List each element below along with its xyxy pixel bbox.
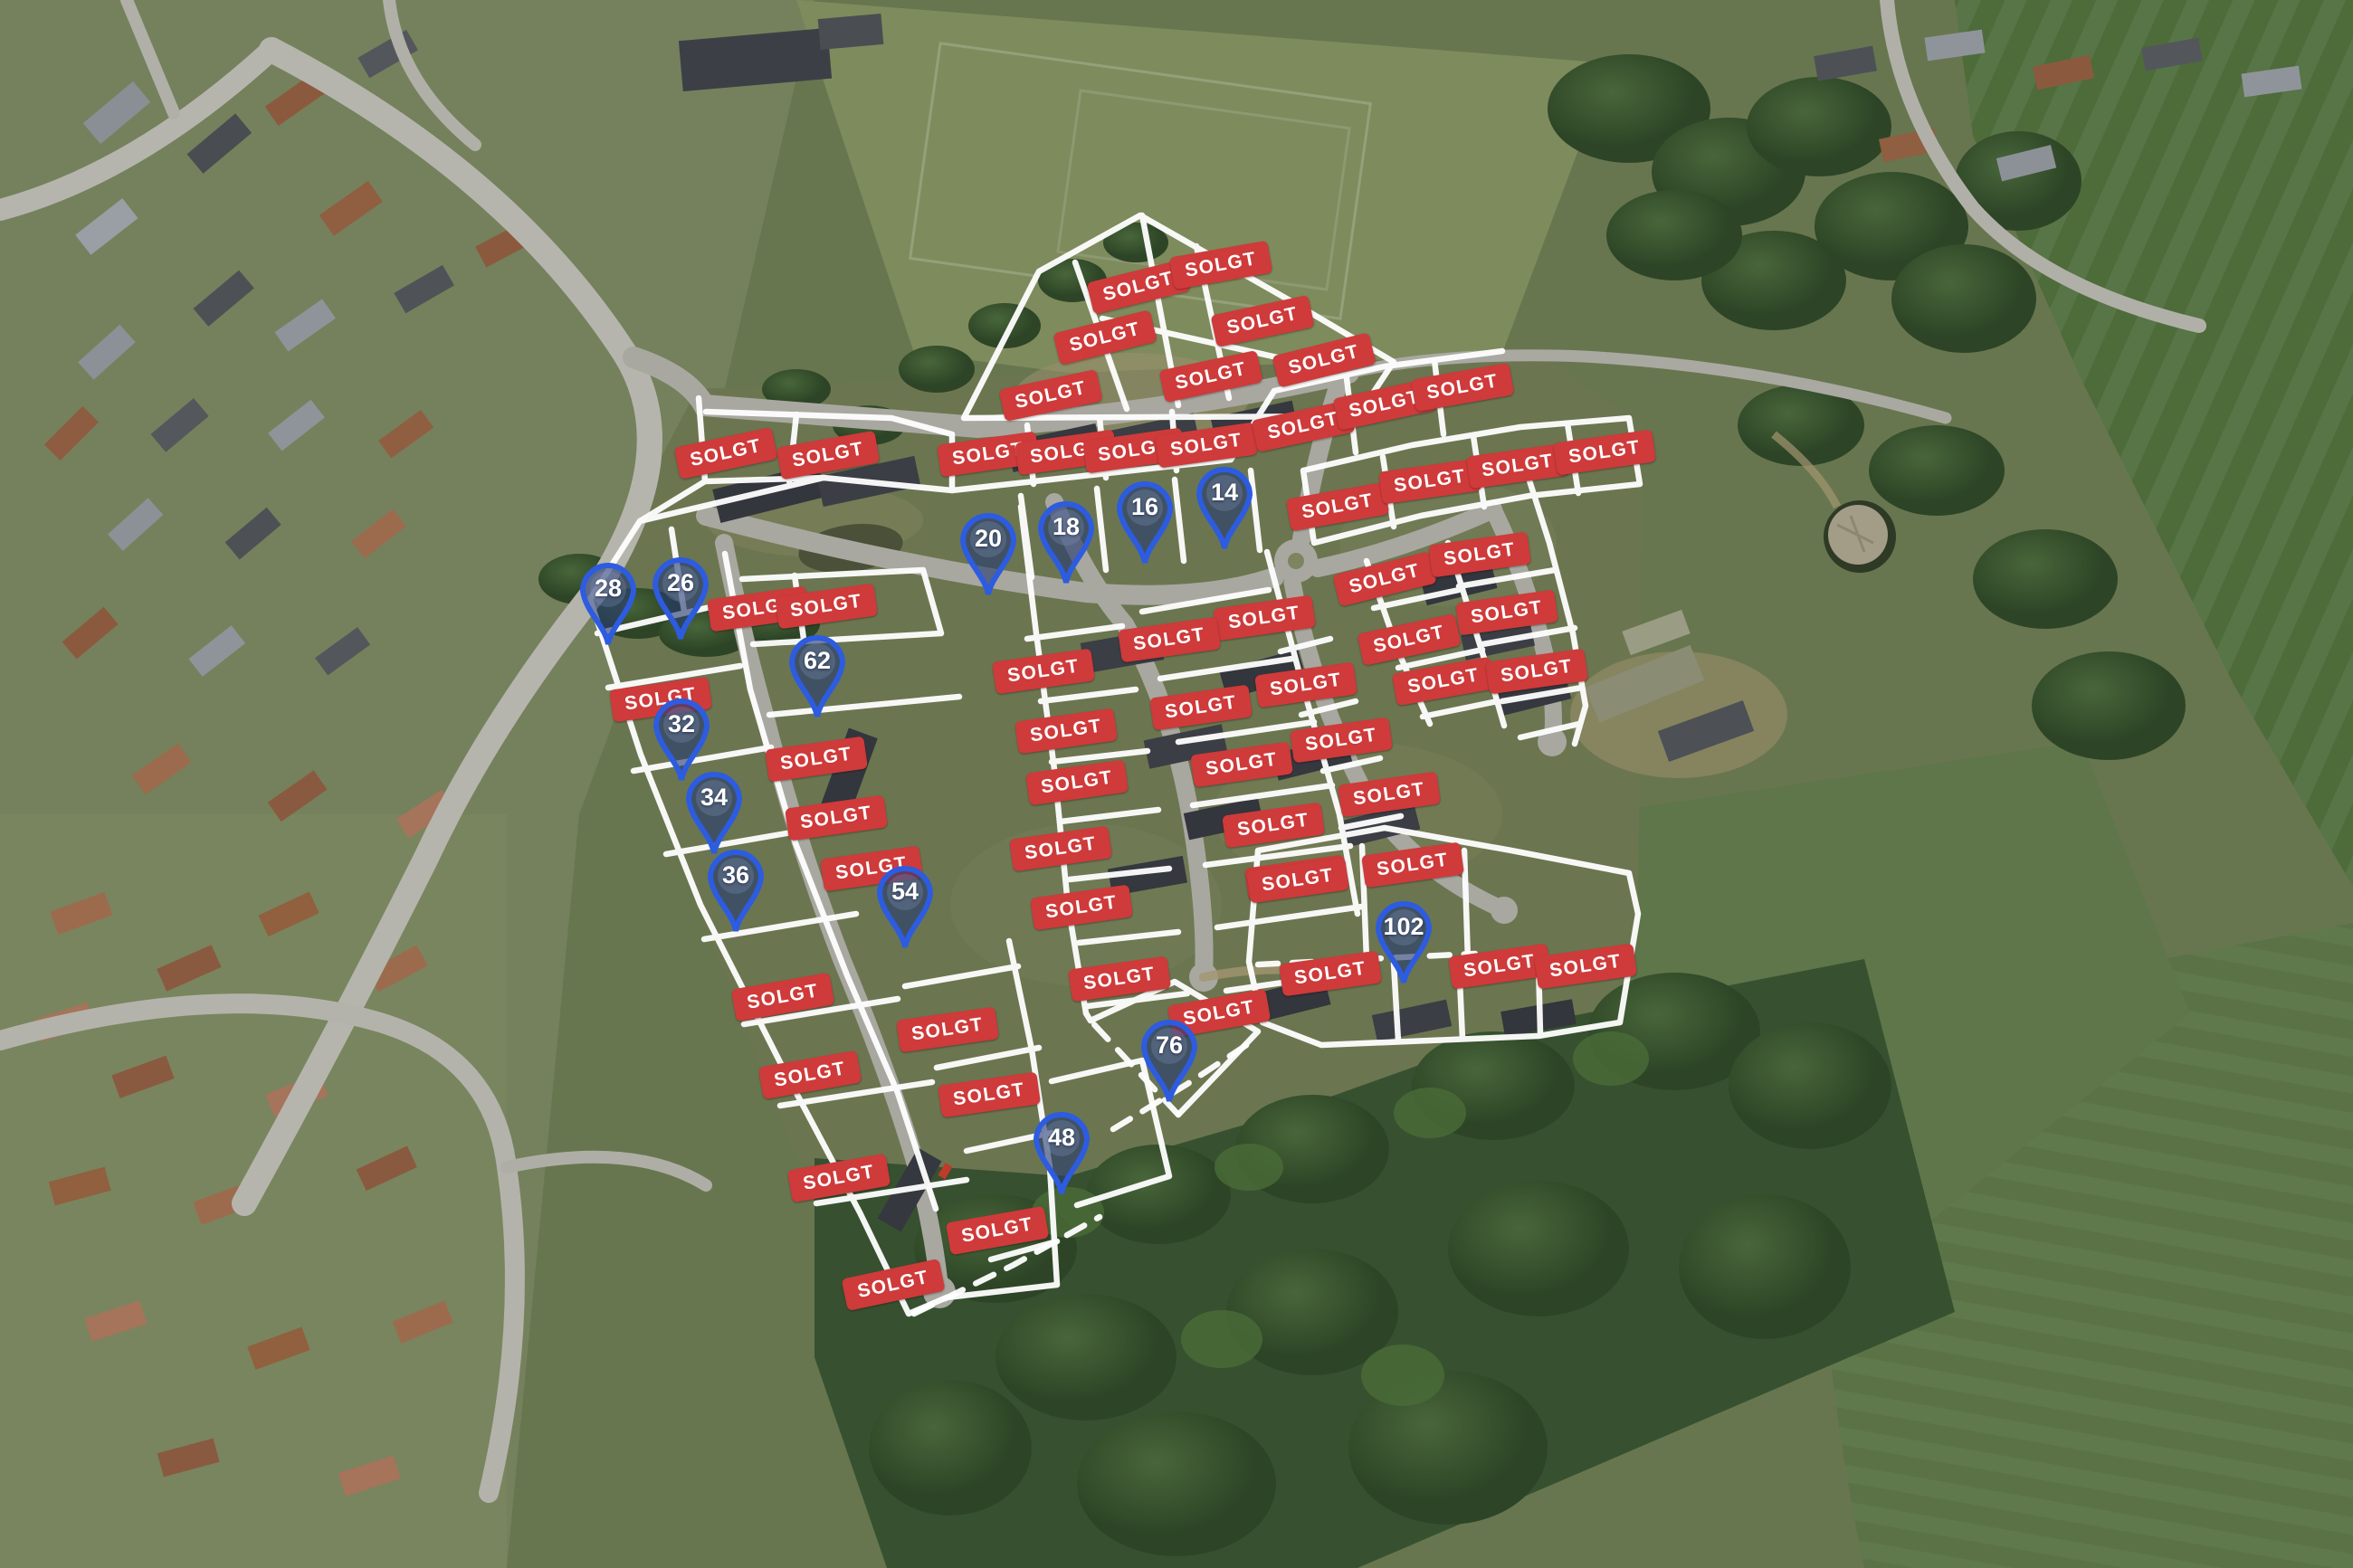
sold-plot-label-text: SOLGT (1300, 489, 1376, 523)
plot-number: 26 (648, 569, 713, 597)
sold-plot-label: SOLGT (674, 427, 778, 480)
sold-plot-label: SOLGT (1211, 295, 1315, 347)
available-plot-pin[interactable]: 48 (1029, 1104, 1094, 1198)
sold-plot-label: SOLGT (1332, 551, 1436, 607)
sold-plot-label: SOLGT (1534, 944, 1637, 990)
sold-plot-label-text: SOLGT (1006, 656, 1081, 687)
sold-plot-label: SOLGT (1025, 760, 1129, 806)
sold-plot-label: SOLGT (1254, 662, 1357, 708)
sold-plot-label-text: SOLGT (688, 435, 763, 470)
sold-plot-label-text: SOLGT (1044, 892, 1119, 923)
sold-plot-label-text: SOLGT (1443, 539, 1517, 570)
sold-plot-label-text: SOLGT (1470, 597, 1544, 628)
sold-plot-label-text: SOLGT (1567, 437, 1642, 468)
sold-plot-label: SOLGT (1222, 803, 1325, 849)
plot-number: 28 (576, 575, 641, 603)
sold-plot-label-text: SOLGT (1352, 779, 1426, 810)
sold-plot-label: SOLGT (1411, 363, 1514, 413)
sold-plot-label: SOLGT (765, 736, 868, 783)
sold-plot-label: SOLGT (785, 795, 888, 841)
sold-plot-label: SOLGT (1118, 617, 1221, 663)
sold-plot-label: SOLGT (1392, 657, 1495, 707)
available-plot-pin[interactable]: 102 (1371, 893, 1436, 987)
plot-number: 20 (956, 525, 1021, 553)
sold-plot-label-text: SOLGT (789, 591, 863, 622)
sold-plot-label: SOLGT (938, 1072, 1041, 1118)
sold-plot-label-text: SOLGT (1227, 603, 1301, 633)
sold-plot-label: SOLGT (1159, 350, 1263, 403)
plot-number: 48 (1029, 1124, 1094, 1152)
sold-plot-label: SOLGT (731, 973, 834, 1022)
sold-plot-label: SOLGT (1286, 482, 1389, 532)
sold-plot-label: SOLGT (1068, 956, 1171, 1003)
sold-plot-label: SOLGT (1190, 742, 1293, 788)
sold-plot-label: SOLGT (992, 649, 1095, 695)
sold-plot-label-text: SOLGT (799, 803, 873, 833)
sold-plot-label-text: SOLGT (1013, 377, 1088, 413)
sold-plot-label-text: SOLGT (1347, 560, 1422, 598)
plot-number: 34 (681, 784, 747, 812)
sold-plot-label-text: SOLGT (1425, 370, 1500, 404)
sold-plot-label-text: SOLGT (1040, 767, 1114, 798)
sold-plot-label-text: SOLGT (1100, 268, 1176, 306)
plot-number: 18 (1034, 513, 1099, 541)
sold-plot-label: SOLGT (1361, 842, 1464, 889)
sold-plot-label: SOLGT (787, 1154, 891, 1203)
sold-plot-label-text: SOLGT (746, 980, 821, 1013)
available-plot-pin[interactable]: 62 (785, 627, 850, 721)
sold-plot-label-text: SOLGT (1548, 951, 1623, 982)
sold-plot-label-text: SOLGT (1184, 248, 1259, 281)
sold-plot-label-text: SOLGT (1293, 958, 1367, 989)
sold-plot-label-text: SOLGT (1406, 664, 1481, 698)
plot-number: 36 (703, 861, 768, 889)
sold-plot-label-text: SOLGT (1067, 318, 1142, 356)
sold-plot-label: SOLGT (1246, 858, 1349, 904)
plot-marker-overlay: SOLGT SOLGT SOLGT SOLGT SOLGT SOLGT SOLG… (0, 0, 2353, 1568)
sold-plot-label-text: SOLGT (1224, 303, 1300, 338)
plot-number: 32 (649, 710, 714, 738)
sold-plot-label-text: SOLGT (952, 1079, 1026, 1110)
sold-plot-label-text: SOLGT (1269, 670, 1343, 700)
sold-plot-label-text: SOLGT (1347, 386, 1422, 422)
sold-plot-label: SOLGT (1455, 590, 1558, 636)
available-plot-pin[interactable]: 26 (648, 549, 713, 643)
sold-plot-label-text: SOLGT (791, 438, 866, 471)
plot-number: 54 (872, 878, 938, 906)
sold-plot-label: SOLGT (946, 1206, 1049, 1256)
sold-plot-label: SOLGT (1053, 309, 1157, 366)
sold-plot-label-text: SOLGT (773, 1058, 848, 1091)
available-plot-pin[interactable]: 76 (1137, 1012, 1202, 1106)
plot-number: 76 (1137, 1031, 1202, 1060)
sold-plot-label-text: SOLGT (1393, 466, 1467, 497)
sold-plot-label: SOLGT (842, 1259, 946, 1311)
sold-plot-label-text: SOLGT (1173, 358, 1248, 394)
sold-plot-label-text: SOLGT (1462, 951, 1537, 982)
sold-plot-label-text: SOLGT (1164, 692, 1238, 723)
sold-plot-label: SOLGT (1213, 595, 1316, 641)
sold-plot-label: SOLGT (1428, 532, 1531, 578)
sold-plot-label-text: SOLGT (1024, 833, 1098, 864)
sold-plot-label: SOLGT (1485, 649, 1588, 695)
sold-plot-label-text: SOLGT (1481, 451, 1555, 481)
sold-plot-label: SOLGT (999, 369, 1103, 422)
satellite-map: SOLGT SOLGT SOLGT SOLGT SOLGT SOLGT SOLG… (0, 0, 2353, 1568)
sold-plot-label: SOLGT (1149, 685, 1253, 731)
sold-plot-label-text: SOLGT (1286, 341, 1361, 379)
sold-plot-label-text: SOLGT (1500, 656, 1574, 687)
plot-number: 102 (1371, 913, 1436, 941)
available-plot-pin[interactable]: 16 (1112, 473, 1177, 567)
sold-plot-label: SOLGT (1553, 430, 1656, 476)
sold-plot-label: SOLGT (1338, 772, 1441, 818)
sold-plot-label: SOLGT (1030, 885, 1133, 931)
sold-plot-label: SOLGT (1279, 951, 1382, 997)
available-plot-pin[interactable]: 54 (872, 858, 938, 952)
sold-plot-label: SOLGT (1272, 332, 1376, 388)
available-plot-pin[interactable]: 20 (956, 505, 1021, 599)
sold-plot-label: SOLGT (1357, 613, 1462, 666)
sold-plot-label-text: SOLGT (1371, 622, 1446, 657)
plot-number: 14 (1192, 479, 1257, 507)
plot-number: 62 (785, 647, 850, 675)
sold-plot-label-text: SOLGT (1236, 810, 1310, 841)
sold-plot-label-text: SOLGT (802, 1161, 877, 1194)
sold-plot-label-text: SOLGT (779, 744, 853, 774)
sold-plot-label-text: SOLGT (960, 1213, 1035, 1247)
sold-plot-label: SOLGT (1009, 826, 1112, 872)
sold-plot-label-text: SOLGT (1169, 430, 1243, 461)
sold-plot-label-text: SOLGT (1376, 850, 1450, 880)
plot-number: 16 (1112, 493, 1177, 521)
sold-plot-label-text: SOLGT (951, 439, 1025, 470)
sold-plot-label: SOLGT (758, 1050, 862, 1100)
sold-plot-label-text: SOLGT (1304, 725, 1378, 755)
sold-plot-label: SOLGT (896, 1007, 999, 1053)
sold-plot-label-text: SOLGT (910, 1014, 985, 1045)
sold-plot-label: SOLGT (1290, 717, 1393, 764)
sold-plot-label-text: SOLGT (855, 1267, 930, 1302)
available-plot-pin[interactable]: 14 (1192, 459, 1257, 553)
sold-plot-label-text: SOLGT (1261, 865, 1335, 896)
sold-plot-label: SOLGT (1015, 708, 1118, 755)
sold-plot-label: SOLGT (1169, 241, 1272, 290)
available-plot-pin[interactable]: 36 (703, 841, 768, 936)
sold-plot-label-text: SOLGT (1082, 964, 1157, 994)
sold-plot-label-text: SOLGT (1205, 749, 1279, 780)
sold-plot-label: SOLGT (1378, 459, 1481, 505)
available-plot-pin[interactable]: 28 (576, 555, 641, 649)
sold-plot-label-text: SOLGT (1029, 716, 1103, 746)
sold-plot-label-text: SOLGT (1132, 624, 1206, 655)
sold-plot-label-text: SOLGT (1265, 408, 1340, 443)
sold-plot-label: SOLGT (776, 431, 880, 480)
available-plot-pin[interactable]: 18 (1034, 493, 1099, 587)
